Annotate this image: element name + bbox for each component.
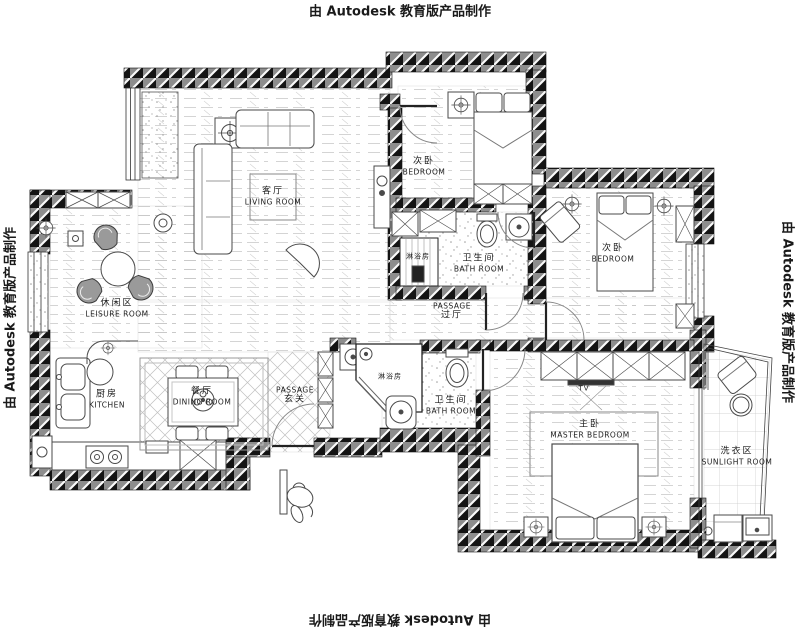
flower-pot bbox=[154, 214, 172, 232]
autodesk-watermark-left: 由 Autodesk 教育版产品制作 bbox=[0, 227, 19, 409]
room-label-living-zh: 客厅 bbox=[245, 187, 302, 198]
autodesk-watermark-bottom: 由 Autodesk 教育版产品制作 bbox=[309, 612, 491, 631]
room-label-hall-zh: 过厅 bbox=[433, 311, 471, 322]
pillow bbox=[556, 517, 594, 539]
autodesk-watermark-right: 由 Autodesk 教育版产品制作 bbox=[780, 221, 799, 403]
bath-cabinets bbox=[392, 210, 456, 236]
room-label-leisure: 休闲区 LEISURE ROOM bbox=[85, 299, 148, 320]
appliance bbox=[146, 441, 168, 453]
room-label-leisure-zh: 休闲区 bbox=[85, 299, 148, 310]
kitchen-table bbox=[87, 359, 113, 385]
room-label-hall: PASSAGE 过厅 bbox=[433, 302, 471, 323]
cabinet-x-boxes bbox=[66, 192, 130, 208]
room-label-sunlight-en: SUNLIGHT ROOM bbox=[702, 458, 773, 467]
round-table bbox=[101, 252, 135, 286]
dining-chair bbox=[206, 366, 228, 379]
wall-sunlight-bottom bbox=[698, 540, 776, 558]
room-label-bedroom-top-zh: 次卧 bbox=[403, 157, 446, 168]
dining-chair bbox=[206, 427, 228, 440]
sofa-vertical bbox=[194, 144, 232, 254]
pillow bbox=[597, 517, 635, 539]
room-label-entry-zh: 玄关 bbox=[276, 395, 314, 406]
toilet-tank bbox=[477, 214, 497, 221]
planter bbox=[68, 231, 83, 246]
wall-master-top bbox=[490, 340, 694, 351]
room-label-dining-en: DINING ROOM bbox=[173, 398, 232, 407]
wall-top-bedroom bbox=[386, 52, 546, 72]
tv-cabinet bbox=[374, 166, 390, 228]
pillow bbox=[504, 93, 530, 112]
room-label-bath-bottom: 卫生间 BATH ROOM bbox=[426, 396, 476, 417]
room-label-bath-bottom-zh: 卫生间 bbox=[426, 396, 476, 407]
wardrobe-x-boxes bbox=[541, 352, 685, 380]
room-label-leisure-en: LEISURE ROOM bbox=[85, 310, 148, 319]
wardrobe-x-boxes bbox=[474, 184, 532, 204]
room-label-bedroom-top: 次卧 BEDROOM bbox=[403, 157, 446, 178]
room-label-dining-zh: 餐厅 bbox=[173, 387, 232, 398]
shower-top-stall bbox=[400, 238, 438, 286]
room-label-entry-en: PASSAGE bbox=[276, 386, 314, 395]
room-label-bedroom-top-en: BEDROOM bbox=[403, 168, 446, 177]
pillow bbox=[476, 93, 502, 112]
room-label-bath-top-zh: 卫生间 bbox=[454, 254, 504, 265]
wall-right-upper bbox=[694, 186, 714, 244]
sofa-horizontal bbox=[236, 110, 314, 148]
room-label-living: 客厅 LIVING ROOM bbox=[245, 187, 302, 208]
room-label-bath-top-en: BATH ROOM bbox=[454, 265, 504, 274]
pillow bbox=[626, 196, 651, 214]
wall-master-left bbox=[476, 390, 490, 456]
room-label-shower-bottom: 淋浴房 bbox=[378, 373, 402, 382]
room-label-hall-en: PASSAGE bbox=[433, 302, 471, 311]
room-label-kitchen-en: KITCHEN bbox=[89, 401, 125, 410]
dining-chair bbox=[176, 427, 198, 440]
room-label-entry: PASSAGE 玄关 bbox=[276, 386, 314, 407]
room-label-master-en: MASTER BEDROOM bbox=[550, 431, 629, 440]
room-label-bedroom-right-en: BEDROOM bbox=[592, 255, 635, 264]
room-label-kitchen: 厨房 KITCHEN bbox=[89, 390, 125, 411]
wall-top-living bbox=[124, 68, 392, 88]
entry-figure bbox=[280, 470, 315, 524]
room-label-master: 主卧 MASTER BEDROOM bbox=[550, 420, 629, 441]
tv-annotation: TV bbox=[578, 385, 589, 394]
wall-bath-hall-a bbox=[396, 286, 486, 300]
wall-stub-bedroom-top bbox=[380, 94, 400, 110]
floor-plan-drawing bbox=[0, 0, 800, 640]
wall-top-bedroom-right bbox=[544, 168, 714, 188]
room-label-living-en: LIVING ROOM bbox=[245, 198, 302, 207]
room-label-kitchen-zh: 厨房 bbox=[89, 390, 125, 401]
room-label-bath-bottom-en: BATH ROOM bbox=[426, 407, 476, 416]
room-label-dining: 餐厅 DINING ROOM bbox=[173, 387, 232, 408]
wall-kitchen-bottom bbox=[50, 470, 250, 490]
tv-unit bbox=[568, 380, 614, 385]
pillow bbox=[599, 196, 624, 214]
wall-entry-right bbox=[314, 438, 382, 457]
laundry-counter bbox=[714, 515, 742, 542]
dining-chair bbox=[176, 366, 198, 379]
floor-plan-page: 由 Autodesk 教育版产品制作 由 Autodesk 教育版产品制作 由 … bbox=[0, 0, 800, 640]
toilet-tank bbox=[446, 349, 468, 357]
room-label-bedroom-right-zh: 次卧 bbox=[592, 244, 635, 255]
window-living-left bbox=[126, 88, 140, 180]
autodesk-watermark-top: 由 Autodesk 教育版产品制作 bbox=[309, 1, 491, 20]
room-label-master-zh: 主卧 bbox=[550, 420, 629, 431]
room-label-shower-top: 淋浴房 bbox=[406, 253, 430, 262]
room-label-bath-top: 卫生间 BATH ROOM bbox=[454, 254, 504, 275]
room-label-sunlight-zh: 洗衣区 bbox=[702, 447, 773, 458]
small-cabinet bbox=[32, 436, 52, 468]
planter-box bbox=[142, 92, 178, 178]
window-left bbox=[28, 252, 48, 332]
room-label-sunlight: 洗衣区 SUNLIGHT ROOM bbox=[702, 447, 773, 468]
room-label-bedroom-right: 次卧 BEDROOM bbox=[592, 244, 635, 265]
shoe-cabinets bbox=[318, 352, 333, 428]
